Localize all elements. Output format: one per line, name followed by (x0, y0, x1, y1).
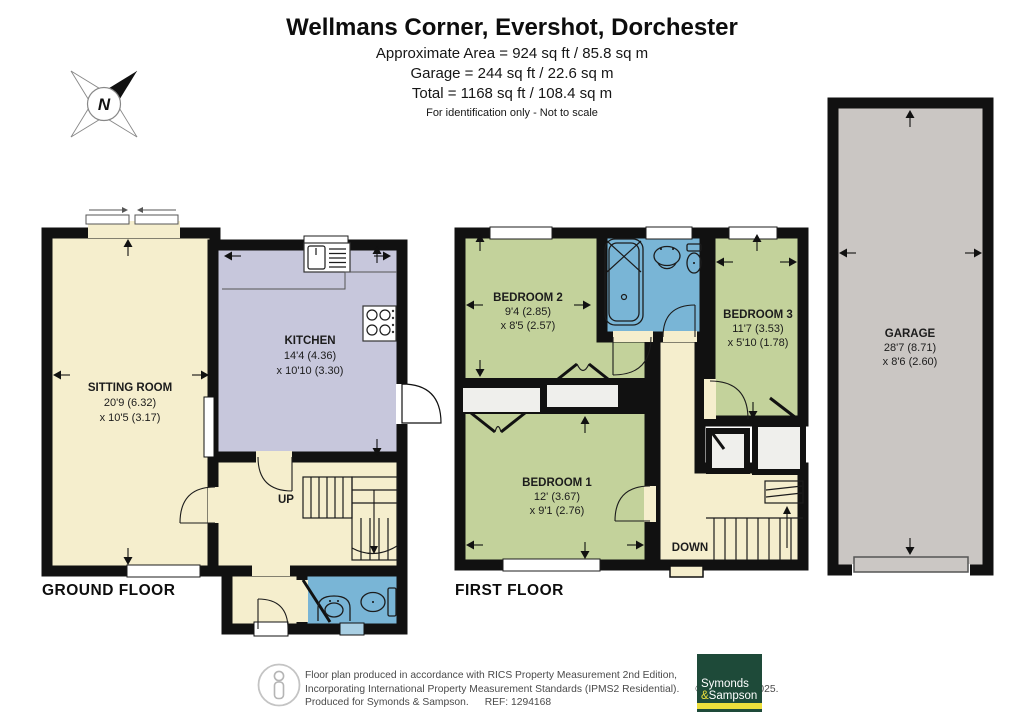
svg-text:GARAGE: GARAGE (885, 328, 936, 340)
bedroom-3-window (729, 227, 777, 239)
first-floor-label: FIRST FLOOR (455, 582, 564, 599)
kitchen-label: KITCHEN 14'4 (4.36) x 10'10 (3.30) (277, 335, 344, 377)
svg-text:x 5'10 (1.78): x 5'10 (1.78) (728, 337, 789, 349)
svg-text:12' (3.67): 12' (3.67) (534, 491, 580, 503)
svg-text:9'4 (2.85): 9'4 (2.85) (505, 306, 551, 318)
patio-door (86, 207, 180, 238)
logo-ampersand: & (701, 690, 709, 702)
sitting-room-window (127, 565, 200, 577)
bedroom-2-window (490, 227, 552, 239)
svg-text:14'4 (4.36): 14'4 (4.36) (284, 350, 336, 362)
disclaimer: For identification only - Not to scale (0, 107, 1024, 119)
landing-recess (670, 566, 703, 577)
radiator (204, 397, 214, 457)
bedroom-3-label: BEDROOM 3 11'7 (3.53) x 5'10 (1.78) (723, 309, 793, 349)
svg-text:28'7 (8.71): 28'7 (8.71) (884, 342, 936, 354)
up-label: UP (278, 494, 294, 506)
logo-word-2: &Sampson (701, 691, 757, 703)
down-label: DOWN (672, 542, 708, 554)
svg-text:11'7 (3.53): 11'7 (3.53) (732, 323, 783, 335)
logo-accent-bar (697, 703, 762, 709)
footer-line-3: Produced for Symonds & Sampson. (305, 697, 469, 708)
garage-label: GARAGE 28'7 (8.71) x 8'6 (2.60) (883, 328, 938, 368)
garage-door (854, 557, 968, 572)
bedroom-1-window (503, 559, 600, 571)
svg-text:x 10'10 (3.30): x 10'10 (3.30) (277, 365, 344, 377)
first-bathroom-window (646, 227, 692, 239)
agency-logo: Symonds &Sampson (697, 654, 762, 712)
ground-floor-label: GROUND FLOOR (42, 582, 175, 599)
plan-header: Wellmans Corner, Evershot, Dorchester Ap… (0, 14, 1024, 119)
svg-text:BEDROOM 3: BEDROOM 3 (723, 309, 793, 321)
ground-floor-plan: UP SITTING ROOM 20'9 (6.32) x 10'5 (3.17… (42, 207, 441, 636)
page-title: Wellmans Corner, Evershot, Dorchester (0, 14, 1024, 42)
svg-text:20'9 (6.32): 20'9 (6.32) (104, 397, 156, 409)
kitchen-sink (304, 243, 350, 272)
cupboard-right (755, 424, 803, 472)
kitchen-external-door (396, 384, 441, 424)
footer-ref: REF: 1294168 (485, 697, 551, 708)
svg-text:x 9'1 (2.76): x 9'1 (2.76) (530, 505, 585, 517)
total-area: Total = 1168 sq ft / 108.4 sq m (0, 85, 1024, 102)
kitchen-hob (363, 306, 396, 341)
svg-text:BEDROOM 1: BEDROOM 1 (522, 477, 592, 489)
hall-opening (252, 560, 290, 576)
garage-area: Garage = 244 sq ft / 22.6 sq m (0, 65, 1024, 82)
approximate-area: Approximate Area = 924 sq ft / 85.8 sq m (0, 45, 1024, 62)
garage-plan: GARAGE 28'7 (8.71) x 8'6 (2.60) (833, 103, 988, 576)
svg-text:x 10'5 (3.17): x 10'5 (3.17) (100, 412, 161, 424)
svg-text:x 8'6 (2.60): x 8'6 (2.60) (883, 356, 938, 368)
svg-text:KITCHEN: KITCHEN (284, 335, 335, 347)
footer-line-2: Incorporating International Property Mea… (305, 684, 679, 695)
hallway-extension (227, 571, 302, 629)
svg-text:SITTING ROOM: SITTING ROOM (88, 382, 172, 394)
person-icon (256, 662, 302, 713)
svg-text:BEDROOM 2: BEDROOM 2 (493, 292, 563, 304)
bathroom-window (340, 623, 364, 635)
svg-text:x 8'5 (2.57): x 8'5 (2.57) (501, 320, 556, 332)
floorplan-page: Wellmans Corner, Evershot, Dorchester Ap… (0, 0, 1024, 724)
